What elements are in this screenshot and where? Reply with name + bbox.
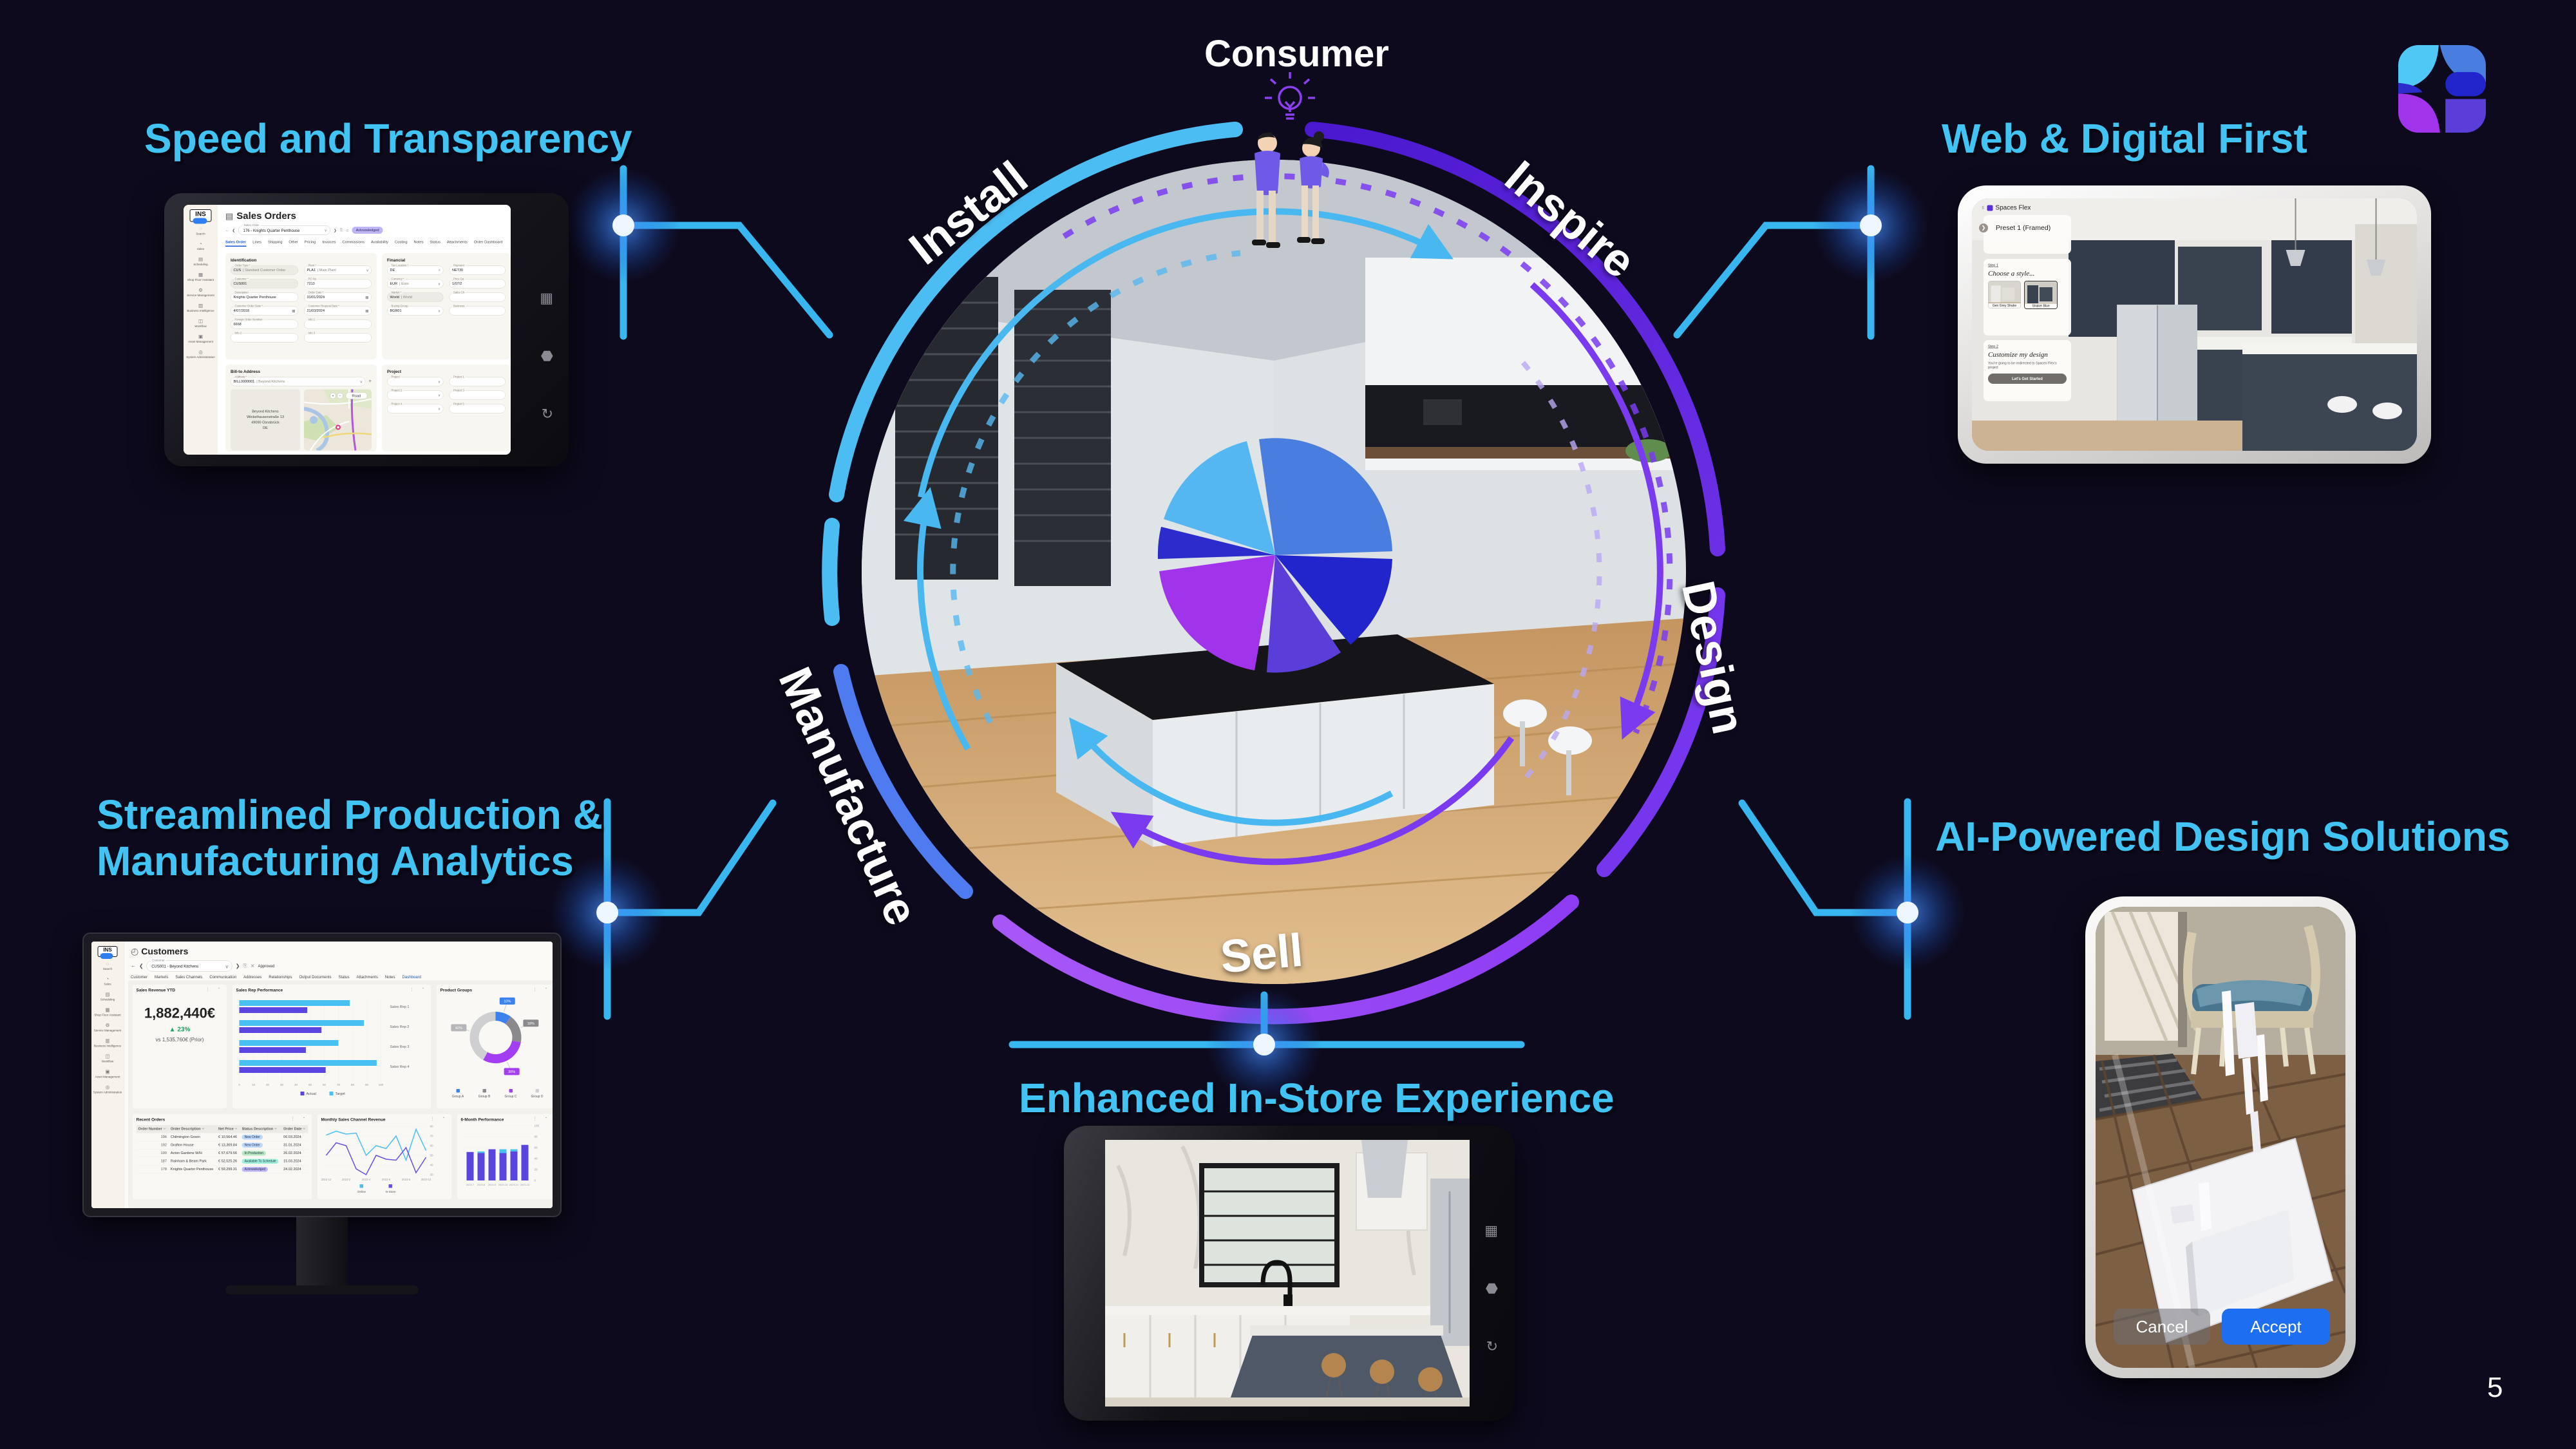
spacesflex-tablet: ⠿ Spaces Flex ❯ Preset 1 (Framed) Step 1… xyxy=(1958,185,2431,464)
svg-text:10%: 10% xyxy=(504,999,511,1003)
svg-text:Sales Rep 4: Sales Rep 4 xyxy=(390,1065,410,1069)
sales-icon: ◔ xyxy=(92,976,123,982)
field-customer-request-date[interactable]: Customer Request Date *21/03/2024▦ xyxy=(304,307,372,316)
svg-text:Actual: Actual xyxy=(307,1092,316,1096)
field-sales-ch[interactable]: Sales Ch xyxy=(450,293,506,302)
svg-text:Sales Rep 2: Sales Rep 2 xyxy=(390,1025,410,1029)
svg-text:20: 20 xyxy=(266,1083,270,1086)
identification-card: Identification Order Type *CUS| Standard… xyxy=(225,253,377,359)
sidebar-item-asset-management[interactable]: ▣Asset Management xyxy=(184,331,218,346)
field-project-4[interactable]: Project 4∨ xyxy=(387,404,444,413)
shop-floor-assistant-icon: ▦ xyxy=(92,1007,123,1013)
dashboard-monitor: INS ◌Search◔Sales▤Scheduling▦Shop Floor … xyxy=(82,933,562,1217)
table-row[interactable]: 190Acton Gardens W/H€ 57,679.56In Produc… xyxy=(137,1149,308,1157)
card-menu-icons[interactable]: ⋮ ⌃ xyxy=(533,1117,551,1121)
svg-text:60: 60 xyxy=(430,1144,434,1148)
revenue-delta: ▲ 23% xyxy=(137,1026,223,1034)
chevron-icon[interactable]: ❯ xyxy=(1979,223,1988,232)
financial-card: Financial Tax Location *DE⌕Currency *EUR… xyxy=(382,253,511,359)
tab-shipping[interactable]: Shipping xyxy=(268,240,282,247)
svg-text:80: 80 xyxy=(430,1125,434,1128)
table-row[interactable]: 178Knights Quarter Penthouse€ 59,299.31A… xyxy=(137,1165,308,1173)
svg-text:40: 40 xyxy=(294,1083,298,1086)
revenue-value: 1,882,440€ xyxy=(137,1005,223,1021)
shop-floor-assistant-icon: ▦ xyxy=(184,272,217,278)
select-icon: ∨ xyxy=(438,393,440,397)
tab-costing[interactable]: Costing xyxy=(395,240,408,247)
step1-panel: Step 1 Choose a style... Gen Grey Shake … xyxy=(1984,259,2071,336)
sidebar-item-shop-floor-assistant[interactable]: ▦Shop Floor Assistant xyxy=(91,1004,124,1019)
spacesflex-screen: ⠿ Spaces Flex ❯ Preset 1 (Framed) Step 1… xyxy=(1972,198,2417,451)
tablet-home-icon[interactable]: ⬣ xyxy=(541,348,553,365)
system-administration-icon: ◎ xyxy=(184,349,217,355)
tablet-rotate-icon[interactable]: ↻ xyxy=(1486,1338,1498,1355)
card-menu-icons[interactable]: ⋮ ⌃ xyxy=(431,1117,449,1121)
dashboard-screen: INS ◌Search◔Sales▤Scheduling▦Shop Floor … xyxy=(91,942,553,1208)
sidebar-item-business-intelligence[interactable]: ▥Business Intelligence xyxy=(184,300,218,316)
svg-text:+: + xyxy=(332,395,334,399)
sidebar-item-system-administration[interactable]: ◎System Administration xyxy=(184,346,218,362)
revenue-prior: vs 1,535,760€ (Prior) xyxy=(137,1037,223,1043)
address-selector[interactable]: BILL0000001| Beyond Kitchens∨ xyxy=(231,377,365,386)
card-menu-icons[interactable]: ⋮ ⌃ xyxy=(291,1117,309,1121)
card-menu-icons[interactable]: ⋮ ⌃ xyxy=(206,987,224,992)
slide: { "page": { "number": "5", "accent": "#4… xyxy=(0,0,2576,1449)
tab-other[interactable]: Other xyxy=(289,240,298,247)
recent-orders-table: Order Number ⏷Order Description ⏷Net Pri… xyxy=(137,1125,308,1173)
title-web: Web & Digital First xyxy=(1942,115,2307,162)
approved-status: Approved xyxy=(258,964,275,969)
field-project-1[interactable]: Project 1 xyxy=(450,377,506,386)
system-administration-icon: ◎ xyxy=(92,1084,123,1090)
select-icon: ∨ xyxy=(438,379,440,384)
field-description[interactable]: DescriptionKnights Quarter Penthouse xyxy=(231,293,298,302)
field-info-2[interactable]: Info 2 xyxy=(231,334,298,343)
tablet-grid-icon[interactable]: ▦ xyxy=(540,290,553,307)
field-order-date[interactable]: Order Date *31/01/2024▦ xyxy=(304,293,372,302)
svg-text:80: 80 xyxy=(535,1135,538,1139)
field-info-1[interactable]: Info 1 xyxy=(304,320,372,329)
address-box: Beyond KitchensWinkelhausenstraße 134909… xyxy=(231,390,300,451)
field-market[interactable]: Market *World| World xyxy=(387,293,444,302)
cancel-button[interactable]: Cancel xyxy=(2114,1309,2210,1345)
svg-text:70: 70 xyxy=(430,1135,434,1138)
svg-text:Group D: Group D xyxy=(531,1095,544,1099)
sales-rep-card: Sales Rep Performance⋮ ⌃ 010203040506070… xyxy=(232,984,431,1109)
erp-title: ▤Sales Orders xyxy=(225,211,511,222)
svg-text:20: 20 xyxy=(535,1168,538,1171)
sidebar-item-scheduling[interactable]: ▤Scheduling xyxy=(184,254,218,269)
svg-text:2023-2: 2023-2 xyxy=(342,1178,351,1181)
field-customer-order-date[interactable]: Customer Order Date *4/07/2018▦ xyxy=(231,307,298,316)
svg-text:Group C: Group C xyxy=(505,1095,517,1099)
sidebar-item-sales[interactable]: ◔Sales xyxy=(184,238,218,254)
product-groups-card: Product Groups⋮ ⌃ 10%18%30%42%Group AGro… xyxy=(436,984,553,1109)
field-project-3[interactable]: Project 3 xyxy=(450,391,506,400)
title-instore: Enhanced In-Store Experience xyxy=(1019,1074,1560,1122)
search-icon: ◌ xyxy=(92,961,123,967)
page-number: 5 xyxy=(2487,1372,2503,1404)
chevron-down-icon: ∨ xyxy=(225,963,229,970)
select-icon: ∨ xyxy=(366,268,368,272)
prev-icon[interactable]: ❮ xyxy=(139,963,144,969)
svg-text:2023-12: 2023-12 xyxy=(520,1183,530,1186)
billto-card: Bill-to Address Address * BILL0000001| B… xyxy=(225,365,377,451)
prev-icon[interactable]: ❮ xyxy=(232,228,236,232)
instore-screen xyxy=(1105,1140,1470,1406)
sidebar-item-service-management[interactable]: ⚙Service Management xyxy=(184,285,218,300)
monthly-revenue-chart: 3040506070802022-122023-22023-42023-6202… xyxy=(321,1122,448,1196)
recent-orders-card: Recent Orders⋮ ⌃ Order Number ⏷Order Des… xyxy=(132,1113,312,1200)
col-status-description[interactable]: Status Description ⏷ xyxy=(240,1125,282,1133)
sidebar-item-scheduling[interactable]: ▤Scheduling xyxy=(91,989,124,1004)
next-icon[interactable]: ❯ xyxy=(334,228,337,232)
select-icon: ∨ xyxy=(438,406,440,411)
svg-text:60: 60 xyxy=(323,1083,327,1086)
field-project[interactable]: Project∨ xyxy=(387,377,444,386)
svg-text:40: 40 xyxy=(535,1157,538,1160)
table-row[interactable]: 187Rainham & Beam Park€ 52,525.26Availab… xyxy=(137,1157,308,1166)
tab-lines[interactable]: Lines xyxy=(252,240,261,247)
svg-text:18%: 18% xyxy=(527,1022,535,1026)
customer-selector[interactable]: Customer CUS001 - Beyond Kitchens ∨ xyxy=(147,961,232,972)
svg-text:Group B: Group B xyxy=(478,1095,491,1099)
instore-tablet: ▦ ⬣ ↻ xyxy=(1064,1126,1515,1421)
tab-attachments[interactable]: Attachments xyxy=(447,240,468,247)
svg-text:2023-9: 2023-9 xyxy=(488,1183,497,1186)
field-tax-location[interactable]: Tax Location *DE⌕ xyxy=(387,266,444,275)
field-order-type[interactable]: Order Type *CUS| Standard Customer Order xyxy=(231,266,298,275)
spacesflex-header: ⠿ Spaces Flex xyxy=(1982,204,2031,212)
svg-text:100: 100 xyxy=(535,1124,540,1128)
copy-icon[interactable]: ⎘ xyxy=(340,228,343,232)
sidebar-item-system-administration[interactable]: ◎System Administration xyxy=(91,1081,124,1097)
tablet-home-icon[interactable]: ⬣ xyxy=(1486,1280,1498,1297)
tab-order-dashboard[interactable]: Order Dashboard xyxy=(474,240,502,247)
svg-text:2023-10: 2023-10 xyxy=(421,1178,431,1181)
back-arrow-icon[interactable]: ← xyxy=(225,229,229,232)
svg-text:2023-4: 2023-4 xyxy=(362,1178,371,1181)
dash-sidebar: INS ◌Search◔Sales▤Scheduling▦Shop Floor … xyxy=(91,942,124,1208)
field-price-da[interactable]: Price Da1/07/2 xyxy=(450,279,506,289)
svg-text:Sales Rep 3: Sales Rep 3 xyxy=(390,1045,410,1049)
col-net-price[interactable]: Net Price ⏷ xyxy=(216,1125,240,1133)
tab-invoices[interactable]: Invoices xyxy=(322,240,336,247)
svg-text:Online: Online xyxy=(357,1190,366,1193)
tab-availability[interactable]: Availability xyxy=(371,240,388,247)
brand-logo xyxy=(2398,45,2486,133)
sidebar-item-service-management[interactable]: ⚙Service Management xyxy=(91,1019,124,1035)
accept-button[interactable]: Accept xyxy=(2222,1309,2330,1345)
select-icon: ∨ xyxy=(438,281,440,286)
ar-screen: Cancel Accept xyxy=(2096,907,2345,1368)
revenue-card: Sales Revenue YTD⋮ ⌃ 1,882,440€ ▲ 23% vs… xyxy=(132,984,227,1109)
asset-management-icon: ▣ xyxy=(92,1069,123,1075)
title-speed: Speed and Transparency xyxy=(144,115,632,162)
svg-text:2023-6: 2023-6 xyxy=(382,1178,391,1181)
field-business[interactable]: Business xyxy=(450,307,506,316)
instore-kitchen-photo xyxy=(1105,1140,1470,1406)
field-po-no[interactable]: PO No7213 xyxy=(304,279,372,289)
preset-panel[interactable]: ❯ Preset 1 (Framed) xyxy=(1984,215,2071,254)
tablet-rotate-icon[interactable]: ↻ xyxy=(542,406,553,422)
field-currency[interactable]: Currency *EUR| Euro∨ xyxy=(387,279,444,289)
customers-icon: ◴ xyxy=(131,947,138,957)
svg-text:90: 90 xyxy=(365,1083,369,1086)
title-production-line1: Streamlined Production & xyxy=(97,791,560,838)
workflow-icon: ◫ xyxy=(184,318,217,324)
svg-text:70: 70 xyxy=(337,1083,341,1086)
product-groups-chart: 10%18%30%42%Group AGroup BGroup CGroup D xyxy=(440,992,551,1105)
sidebar-item-asset-management[interactable]: ▣Asset Management xyxy=(91,1066,124,1081)
svg-text:42%: 42% xyxy=(455,1027,462,1030)
sidebar-item-business-intelligence[interactable]: ▥Business Intelligence xyxy=(91,1035,124,1050)
tab-notes[interactable]: Notes xyxy=(414,240,424,247)
title-production-line2: Manufacturing Analytics xyxy=(97,837,560,885)
svg-text:30%: 30% xyxy=(508,1070,515,1074)
svg-text:In-Store: In-Store xyxy=(385,1190,396,1193)
six-month-card: 6-Month Performance⋮ ⌃ 0204060801002023-… xyxy=(457,1113,553,1200)
erp-logo: INS xyxy=(190,209,212,222)
svg-text:0: 0 xyxy=(535,1179,536,1182)
field-buying-group[interactable]: Buying GroupBGR01∨ xyxy=(387,307,444,316)
ar-camera-view xyxy=(2096,907,2345,1368)
svg-text:Group A: Group A xyxy=(452,1095,464,1099)
field-project-2[interactable]: Project 2∨ xyxy=(387,391,444,400)
erp-tablet: ▦ ⬣ ↻ INS ◌Search◔Sales▤Scheduling▦Shop … xyxy=(164,193,569,466)
field-customer[interactable]: Customer *CUS001 xyxy=(231,279,298,289)
sidebar-item-shop-floor-assistant[interactable]: ▦Shop Floor Assistant xyxy=(184,269,218,285)
scheduling-icon: ▤ xyxy=(92,992,123,998)
col-order-description[interactable]: Order Description ⏷ xyxy=(169,1125,216,1133)
six-month-chart: 0204060801002023-72023-82023-92023-10202… xyxy=(461,1122,551,1196)
tab-sales-order[interactable]: Sales Order xyxy=(225,240,246,247)
svg-text:100: 100 xyxy=(379,1083,384,1086)
currency-icon[interactable]: ⊙ xyxy=(346,228,349,232)
field-foreign-order-number[interactable]: Foreign Order Number6668 xyxy=(231,320,298,329)
chevron-down-icon: ∨ xyxy=(325,229,327,233)
svg-text:2023-10: 2023-10 xyxy=(498,1183,508,1186)
svg-text:10: 10 xyxy=(252,1083,256,1086)
dash-card-grid: Sales Revenue YTD⋮ ⌃ 1,882,440€ ▲ 23% vs… xyxy=(128,980,553,1208)
tab-status[interactable]: Status xyxy=(430,240,440,247)
ar-phone: Cancel Accept xyxy=(2085,896,2356,1378)
title-ai: AI-Powered Design Solutions xyxy=(1935,813,2510,860)
step2-panel: Step 2 Customize my design You're going … xyxy=(1984,340,2071,401)
svg-text:−: − xyxy=(339,395,341,399)
monitor-stand xyxy=(296,1217,348,1287)
style-thumb-shaker-blue[interactable]: Shaker Blue xyxy=(2024,281,2058,309)
tab-commissions[interactable]: Commissions xyxy=(342,240,365,247)
sidebar-item-sales[interactable]: ◔Sales xyxy=(91,974,124,989)
select-icon: ∨ xyxy=(438,308,440,313)
sidebar-item-search[interactable]: ◌Search xyxy=(184,223,218,239)
workflow-icon: ◫ xyxy=(92,1054,123,1059)
lightbulb-icon xyxy=(1265,72,1315,118)
svg-text:Road: Road xyxy=(352,395,361,399)
status-badge: Acknowledged xyxy=(352,227,383,234)
chevron-down-icon: ∨ xyxy=(360,379,363,384)
stage-sell: Sell xyxy=(1218,924,1305,984)
document-icon: ▤ xyxy=(225,211,233,221)
service-management-icon: ⚙ xyxy=(184,287,217,293)
cloud-icon xyxy=(193,218,207,224)
col-order-date[interactable]: Order Date ⏷ xyxy=(281,1125,308,1133)
svg-text:2022-12: 2022-12 xyxy=(321,1178,332,1181)
spacesflex-logo-icon xyxy=(1987,205,1993,211)
svg-text:Target: Target xyxy=(336,1092,346,1096)
date-icon: ▦ xyxy=(365,308,368,313)
svg-text:40: 40 xyxy=(430,1164,434,1167)
service-management-icon: ⚙ xyxy=(92,1023,123,1028)
lets-get-started-button[interactable]: Let's Get Started xyxy=(1988,374,2067,384)
sales-rep-chart: 0102030405060708090100Sales Rep 1Sales R… xyxy=(236,992,428,1105)
add-address-icon[interactable]: + xyxy=(368,379,372,386)
project-card: Project Project∨Project 2∨Project 4∨Proj… xyxy=(382,365,511,451)
svg-text:2023-8: 2023-8 xyxy=(477,1183,486,1186)
erp-tab-strip: Sales OrderLinesShippingOtherPricingInvo… xyxy=(225,240,511,249)
consumer-label: Consumer xyxy=(1204,32,1385,75)
map[interactable]: Road − + xyxy=(304,390,372,451)
erp-sidebar: INS ◌Search◔Sales▤Scheduling▦Shop Floor … xyxy=(184,205,218,455)
svg-text:2023-7: 2023-7 xyxy=(466,1183,475,1186)
svg-text:Sales Rep 1: Sales Rep 1 xyxy=(390,1005,410,1009)
sidebar-item-search[interactable]: ◌Search xyxy=(91,958,124,974)
date-icon: ▦ xyxy=(365,295,368,299)
svg-text:30: 30 xyxy=(430,1173,434,1177)
field-project-5[interactable]: Project 5 xyxy=(450,404,506,413)
tablet-grid-icon[interactable]: ▦ xyxy=(1484,1222,1498,1239)
svg-text:80: 80 xyxy=(351,1083,355,1086)
sales-icon: ◔ xyxy=(184,241,217,247)
sidebar-item-workflow[interactable]: ◫Workflow xyxy=(184,316,218,331)
close-icon[interactable]: ✕ xyxy=(251,963,255,969)
field-plant[interactable]: Plant *PLA1| Main Plant∨ xyxy=(304,266,372,275)
sales-order-selector[interactable]: Sales Order 176 - Knights Quarter Pentho… xyxy=(238,225,330,235)
monthly-revenue-card: Monthly Sales Channel Revenue⋮ ⌃ 3040506… xyxy=(317,1113,452,1200)
table-row[interactable]: 196Chilmington Green€ 10,564.46New Order… xyxy=(137,1133,308,1141)
svg-text:50: 50 xyxy=(308,1083,312,1086)
scheduling-icon: ▤ xyxy=(184,256,217,262)
svg-text:2023-8: 2023-8 xyxy=(402,1178,411,1181)
erp-screen: INS ◌Search◔Sales▤Scheduling▦Shop Floor … xyxy=(184,205,511,455)
card-menu-icons[interactable]: ⋮ ⌃ xyxy=(533,987,551,992)
business-intelligence-icon: ▥ xyxy=(184,303,217,308)
erp-main: ▤Sales Orders ← ❮ Sales Order 176 - Knig… xyxy=(218,205,511,455)
copy-icon[interactable]: ⎘ xyxy=(243,963,247,969)
next-icon[interactable]: ❯ xyxy=(236,963,240,969)
back-arrow-icon[interactable]: ← xyxy=(131,963,136,969)
search-icon: ⌕ xyxy=(439,268,440,272)
date-icon: ▦ xyxy=(292,308,295,313)
sidebar-item-workflow[interactable]: ◫Workflow xyxy=(91,1050,124,1066)
col-order-number[interactable]: Order Number ⏷ xyxy=(137,1125,169,1133)
search-icon: ◌ xyxy=(184,226,217,232)
card-menu-icons[interactable]: ⋮ ⌃ xyxy=(410,987,428,992)
monitor-base xyxy=(225,1285,419,1294)
svg-text:30: 30 xyxy=(280,1083,284,1086)
tab-pricing[interactable]: Pricing xyxy=(305,240,316,247)
field-payment[interactable]: PaymentNET30 xyxy=(450,266,506,275)
table-row[interactable]: 192Grafton House€ 13,369.84New Order31.0… xyxy=(137,1141,308,1150)
svg-text:0: 0 xyxy=(238,1083,240,1086)
svg-text:60: 60 xyxy=(535,1146,538,1150)
svg-text:50: 50 xyxy=(430,1154,434,1157)
style-thumb-gen-grey-shake[interactable]: Gen Grey Shake xyxy=(1988,281,2021,308)
dash-title: ◴Customers xyxy=(131,946,553,957)
field-info-3[interactable]: Info 3 xyxy=(304,334,372,343)
business-intelligence-icon: ▥ xyxy=(92,1038,123,1044)
asset-management-icon: ▣ xyxy=(184,334,217,339)
svg-text:2023-11: 2023-11 xyxy=(509,1183,519,1186)
